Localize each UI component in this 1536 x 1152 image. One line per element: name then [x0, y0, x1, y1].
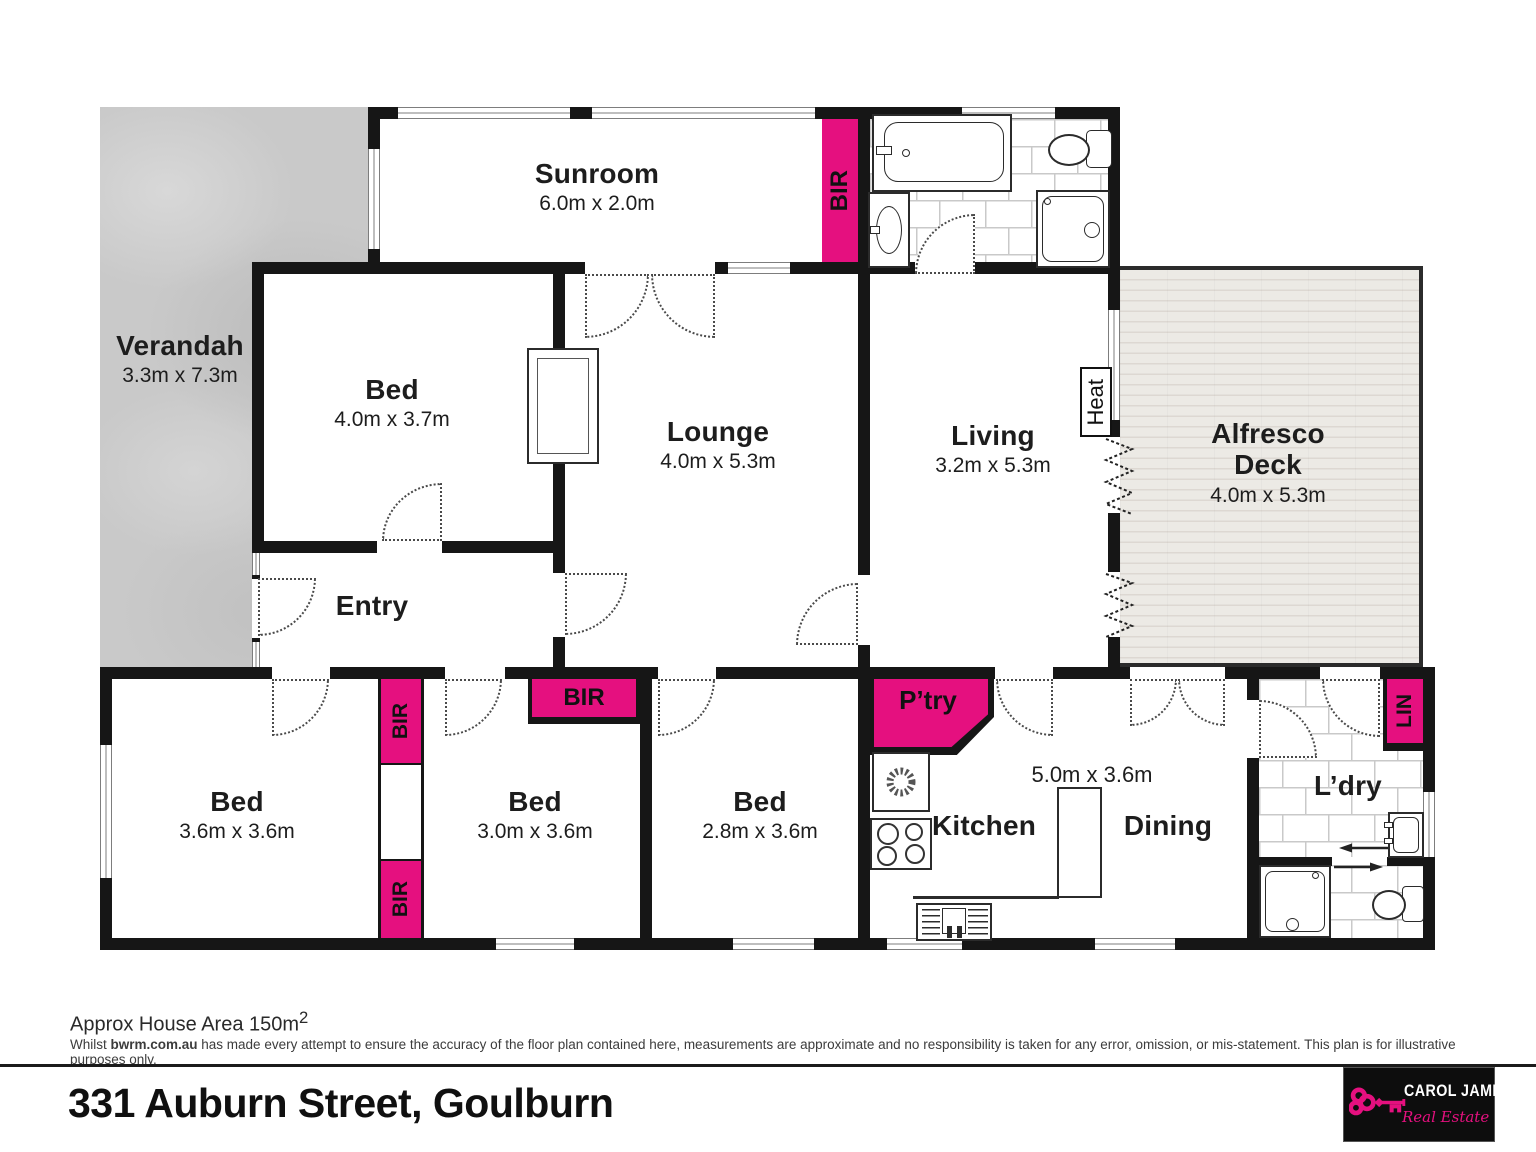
brand-name: bwrm.com.au	[111, 1037, 198, 1052]
laundry-tap	[1384, 822, 1393, 828]
room-label-bed4: Bed2.8m x 3.6m	[660, 786, 860, 844]
room-label-bed2: Bed3.6m x 3.6m	[137, 786, 337, 844]
door-arc-lounge	[565, 573, 627, 635]
room-label-sunroom: Sunroom6.0m x 2.0m	[447, 158, 747, 216]
agency-name: CAROL JAMES	[1404, 1081, 1512, 1101]
window	[496, 938, 574, 950]
shower-control	[1044, 198, 1051, 205]
agency-tagline: Real Estate	[1402, 1108, 1489, 1126]
wall-segment	[1055, 107, 1120, 119]
wall-segment	[570, 107, 592, 119]
room-label-alfresco: Alfresco Deck4.0m x 5.3m	[1158, 418, 1378, 507]
deck-edge	[1419, 266, 1423, 667]
kitchen-peninsula-bench	[1057, 787, 1102, 898]
oven-fan-icon	[877, 758, 925, 806]
bifold-door-zigzag	[1100, 570, 1138, 642]
shower-rose	[1084, 222, 1100, 238]
wall-segment	[442, 541, 565, 553]
window	[100, 745, 112, 878]
door-arc-bed2	[272, 679, 329, 736]
linen-label: LIN	[1387, 679, 1423, 743]
bir-label: BIR	[381, 679, 421, 763]
window	[733, 938, 814, 950]
deck-double-door-left	[1130, 679, 1177, 726]
french-door-left	[585, 274, 649, 338]
deck-double-door-right	[1178, 679, 1225, 726]
room-label-bed3: Bed3.0m x 3.6m	[435, 786, 635, 844]
wall-segment	[1247, 758, 1259, 938]
passage-arrows	[1328, 838, 1392, 876]
house-area-note: Approx House Area 150m2	[70, 1008, 308, 1037]
sink-drainer-right	[968, 909, 988, 935]
wall-segment	[330, 667, 445, 679]
wall-segment	[715, 262, 728, 274]
room-label-kitchen: Kitchen	[909, 810, 1059, 841]
wall-segment	[505, 667, 658, 679]
wall-segment	[100, 878, 112, 938]
shower-drain-wc	[1286, 918, 1299, 931]
window	[592, 107, 815, 119]
toilet-bowl	[1048, 134, 1090, 166]
label-kitchen-dining-dims: 5.0m x 3.6m	[1002, 760, 1182, 788]
french-door-right	[651, 274, 715, 338]
wall-segment	[1175, 938, 1435, 950]
shower-control-wc	[1312, 872, 1319, 879]
footer-divider	[0, 1064, 1536, 1067]
agency-logo: CAROL JAMES Real Estate	[1343, 1067, 1495, 1142]
robe-divider-gap	[381, 765, 421, 859]
door-arc-living	[796, 583, 858, 645]
sink-drainer-left	[922, 909, 940, 935]
wall-segment	[252, 262, 565, 274]
wall-segment	[1120, 667, 1130, 679]
wall-segment	[368, 119, 380, 149]
window	[252, 553, 260, 575]
key-icon	[1349, 1084, 1407, 1128]
wall-segment	[716, 667, 995, 679]
toilet-bowl-wc	[1372, 890, 1406, 920]
bath-plug	[902, 149, 910, 157]
wall-segment	[368, 107, 398, 119]
window	[1423, 792, 1435, 857]
wall-segment	[640, 679, 652, 938]
wall-segment	[553, 637, 565, 667]
sink-bowl	[942, 908, 966, 934]
room-label-living: Living3.2m x 5.3m	[893, 420, 1093, 478]
laundry-tub-inner	[1393, 817, 1419, 853]
vanity-tap	[870, 226, 880, 234]
door-arc-bed4	[658, 679, 715, 736]
wall-segment	[1053, 667, 1120, 679]
superscript: 2	[299, 1008, 308, 1027]
window	[368, 149, 380, 249]
pantry-label: P’try	[874, 683, 982, 717]
window	[252, 642, 260, 667]
room-label-entry: Entry	[302, 590, 442, 621]
room-label-verandah: Verandah3.3m x 7.3m	[98, 330, 262, 388]
wall-segment	[1380, 667, 1435, 679]
deck-edge	[1120, 266, 1423, 270]
wall-segment	[858, 274, 870, 575]
door-arc-bed3	[445, 679, 502, 736]
door-arc-kitchen	[996, 679, 1053, 736]
sink-tap	[957, 926, 962, 938]
room-label-dining: Dining	[1093, 810, 1243, 841]
window	[398, 107, 570, 119]
wall-segment	[252, 541, 377, 553]
wall-segment	[858, 645, 870, 667]
wall-segment	[100, 679, 112, 745]
property-address: 331 Auburn Street, Goulburn	[68, 1080, 613, 1127]
floor-plan-page: BIR BIR BIR BIR P’try LIN Heat	[0, 0, 1536, 1152]
wall-segment	[1225, 667, 1320, 679]
bir-label: BIR	[822, 119, 858, 262]
wall-segment	[252, 274, 264, 541]
wall-segment	[565, 262, 585, 274]
wall-segment	[1247, 679, 1259, 700]
wall-segment	[1108, 513, 1120, 572]
bifold-door-zigzag	[1100, 435, 1138, 517]
wall-segment	[815, 107, 860, 119]
wall-segment	[1423, 857, 1435, 938]
bir-label: BIR	[381, 861, 421, 938]
wall-segment	[574, 938, 733, 950]
bath-tap	[876, 146, 892, 155]
bir-label: BIR	[532, 679, 636, 717]
room-label-laundry: L’dry	[1268, 770, 1428, 801]
fireplace-inner	[537, 358, 589, 454]
wall-segment	[100, 938, 496, 950]
door-arc-bed1	[382, 483, 442, 541]
wall-segment	[814, 938, 887, 950]
wall-segment	[368, 249, 380, 262]
room-label-lounge: Lounge4.0m x 5.3m	[618, 416, 818, 474]
wall-segment	[1387, 857, 1423, 866]
window	[728, 262, 790, 274]
sink-tap	[947, 926, 952, 938]
window	[1095, 938, 1175, 950]
kitchen-bench-edge	[913, 896, 1059, 899]
wall-segment	[100, 667, 272, 679]
room-label-bed1: Bed4.0m x 3.7m	[292, 374, 492, 432]
wall-segment	[790, 262, 860, 274]
disclaimer-text: Whilst bwrm.com.au has made every attemp…	[70, 1037, 1500, 1067]
